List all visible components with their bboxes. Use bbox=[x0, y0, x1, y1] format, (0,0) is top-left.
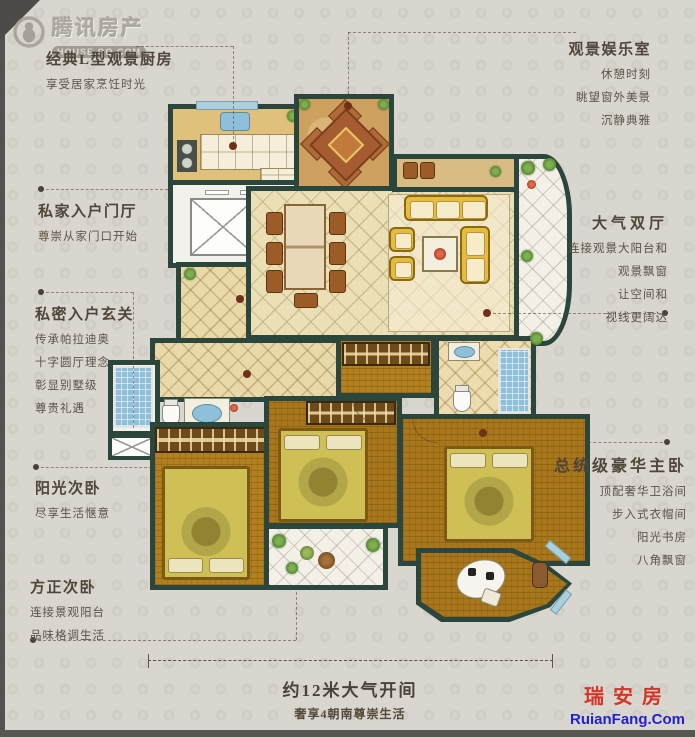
annotation-entertainment: 观景娱乐室 休憩时刻 眺望窗外美景 沉静典雅 bbox=[568, 38, 651, 128]
kitchen-counter bbox=[200, 134, 300, 170]
bed-icon bbox=[278, 428, 368, 522]
annotation-master-bedroom: 总统级豪华主卧 顶配奢华卫浴间 步入式衣帽间 阳光书房 八角飘窗 bbox=[554, 452, 687, 568]
entrance-detail bbox=[205, 190, 229, 195]
wardrobe-icon bbox=[155, 427, 269, 453]
annotation-master-line: 步入式衣帽间 bbox=[554, 506, 687, 522]
leader-sunny-bedroom bbox=[36, 467, 152, 468]
leader-entertainment-v bbox=[348, 32, 349, 104]
dimension-tick-right bbox=[552, 654, 553, 668]
armchair-icon bbox=[389, 227, 415, 252]
stove-icon bbox=[177, 140, 197, 172]
sofa-icon bbox=[404, 195, 488, 221]
leader-foyer bbox=[41, 292, 133, 293]
leader-dot-sunny bbox=[33, 464, 39, 470]
annotation-entertainment-title: 观景娱乐室 bbox=[568, 38, 651, 59]
chair-icon bbox=[329, 242, 346, 265]
chair-icon bbox=[420, 162, 435, 179]
annotation-double-hall: 大气双厅 连接观景大阳台和 观景飘窗 让空间和 视线更阔达 bbox=[568, 212, 668, 325]
chair-icon bbox=[403, 162, 418, 179]
leader-dot-corridor bbox=[243, 370, 251, 378]
chair-icon bbox=[329, 270, 346, 293]
annotation-square-line: 品味格调生活 bbox=[30, 627, 105, 643]
annotation-square-bedroom: 方正次卧 连接景观阳台 品味格调生活 bbox=[30, 576, 105, 643]
annotation-double-hall-title: 大气双厅 bbox=[568, 212, 668, 233]
flower-icon bbox=[434, 248, 446, 260]
chair-icon bbox=[266, 270, 283, 293]
tencent-brand: 腾讯房产 bbox=[52, 12, 146, 42]
annotation-double-hall-line: 观景飘窗 bbox=[568, 263, 668, 279]
annotation-double-hall-line: 视线更阔达 bbox=[568, 309, 668, 325]
photo-edge-bottom bbox=[0, 730, 695, 737]
plant-icon bbox=[299, 99, 310, 110]
annotation-kitchen-title: 经典L型观景厨房 bbox=[46, 48, 173, 69]
leader-dot-master bbox=[664, 439, 670, 445]
plant-icon bbox=[543, 158, 556, 171]
plant-icon bbox=[366, 538, 380, 552]
leader-dot-hall-room bbox=[483, 309, 491, 317]
annotation-foyer-line: 传承帕拉迪奥 bbox=[35, 331, 134, 347]
annotation-double-hall-line: 连接观景大阳台和 bbox=[568, 240, 668, 256]
armchair-icon bbox=[389, 256, 415, 281]
annotation-sunny-line: 尽享生活惬意 bbox=[35, 505, 110, 521]
dimension-sublabel: 奢享4朝南尊崇生活 bbox=[150, 705, 550, 722]
ruian-domain: RuianFang.Com bbox=[570, 711, 685, 728]
desk-item bbox=[468, 568, 476, 576]
loveseat-icon bbox=[460, 226, 490, 284]
kitchen-window bbox=[196, 101, 258, 110]
plant-icon bbox=[184, 268, 196, 280]
leader-dot-entrance bbox=[38, 186, 44, 192]
plant-icon bbox=[530, 332, 543, 345]
leader-square-bedroom-v bbox=[296, 592, 297, 640]
leader-dot-foyer-room bbox=[236, 295, 244, 303]
dimension-tick-left bbox=[148, 654, 149, 668]
dining-table-icon bbox=[284, 204, 326, 290]
annotation-square-line: 连接景观阳台 bbox=[30, 604, 105, 620]
annotation-foyer-title: 私密入户玄关 bbox=[35, 303, 134, 324]
leader-dot-kitchen bbox=[229, 142, 237, 150]
annotation-foyer-line: 尊贵礼遇 bbox=[35, 400, 134, 416]
annotation-master-line: 顶配奢华卫浴间 bbox=[554, 483, 687, 499]
annotation-kitchen-line: 享受居家烹饪时光 bbox=[46, 76, 173, 92]
wardrobe-icon bbox=[306, 401, 396, 425]
desk-item bbox=[486, 572, 494, 580]
bed-icon bbox=[444, 446, 534, 542]
kitchen-sink-icon bbox=[220, 112, 250, 131]
plant-icon bbox=[378, 99, 389, 110]
annotation-sunny-bedroom: 阳光次卧 尽享生活惬意 bbox=[35, 477, 110, 521]
annotation-entrance-hall: 私家入户门厅 尊崇从家门口开始 bbox=[38, 200, 138, 244]
toilet-icon bbox=[453, 388, 471, 412]
leader-dot-master-room bbox=[479, 429, 487, 437]
annotation-kitchen: 经典L型观景厨房 享受居家烹饪时光 bbox=[46, 48, 173, 92]
annotation-entertainment-line: 眺望窗外美景 bbox=[568, 89, 651, 105]
plant-icon bbox=[286, 562, 298, 574]
annotation-master-title: 总统级豪华主卧 bbox=[554, 452, 687, 476]
leader-entrance bbox=[41, 189, 168, 190]
annotation-master-line: 阳光书房 bbox=[554, 529, 687, 545]
tencent-logo-icon bbox=[12, 12, 48, 52]
chair-icon bbox=[329, 212, 346, 235]
annotation-entrance-title: 私家入户门厅 bbox=[38, 200, 138, 221]
wardrobe-icon bbox=[342, 342, 430, 366]
dimension-line bbox=[148, 660, 553, 661]
annotation-foyer-line: 十字圆厅理念 bbox=[35, 354, 134, 370]
chair-icon bbox=[294, 293, 318, 308]
dimension-text: 约12米大气开间 奢享4朝南尊崇生活 bbox=[150, 676, 550, 722]
annotation-master-line: 八角飘窗 bbox=[554, 552, 687, 568]
bed-icon bbox=[162, 466, 250, 580]
leader-kitchen bbox=[136, 46, 233, 47]
plant-icon bbox=[272, 534, 286, 548]
annotation-sunny-title: 阳光次卧 bbox=[35, 477, 110, 498]
decor-bowl-icon bbox=[318, 552, 335, 569]
plant-icon bbox=[521, 161, 535, 175]
floorplan-photo: 腾讯房产 HOUSE.QQ.COM bbox=[0, 0, 695, 737]
leader-dot-foyer bbox=[38, 289, 44, 295]
annotation-foyer: 私密入户玄关 传承帕拉迪奥 十字圆厅理念 彰显别墅级 尊贵礼遇 bbox=[35, 303, 134, 416]
leader-kitchen-v bbox=[233, 46, 234, 144]
ruian-brand: 瑞安房 bbox=[570, 680, 685, 709]
annotation-entrance-line: 尊崇从家门口开始 bbox=[38, 228, 138, 244]
dimension-label: 约12米大气开间 bbox=[150, 676, 550, 701]
plant-icon bbox=[490, 166, 501, 177]
photo-edge-left bbox=[0, 0, 5, 737]
flower-icon bbox=[230, 404, 238, 412]
leader-dot-entertainment bbox=[344, 102, 352, 110]
flower-icon bbox=[527, 180, 536, 189]
annotation-entertainment-line: 休憩时刻 bbox=[568, 66, 651, 82]
utility-balcony bbox=[108, 434, 156, 460]
leader-master bbox=[588, 442, 668, 443]
annotation-square-title: 方正次卧 bbox=[30, 576, 105, 597]
watermark-ruian: 瑞安房 RuianFang.Com bbox=[570, 680, 685, 728]
plant-icon bbox=[521, 250, 533, 262]
armchair-icon bbox=[532, 562, 548, 588]
leader-entertainment bbox=[348, 32, 576, 33]
shower-icon bbox=[498, 348, 530, 414]
annotation-double-hall-line: 让空间和 bbox=[568, 286, 668, 302]
annotation-entertainment-line: 沉静典雅 bbox=[568, 112, 651, 128]
chair-icon bbox=[266, 212, 283, 235]
annotation-foyer-line: 彰显别墅级 bbox=[35, 377, 134, 393]
decor-fruit-icon bbox=[300, 546, 314, 560]
washbasin-icon bbox=[448, 342, 480, 361]
chair-icon bbox=[266, 242, 283, 265]
